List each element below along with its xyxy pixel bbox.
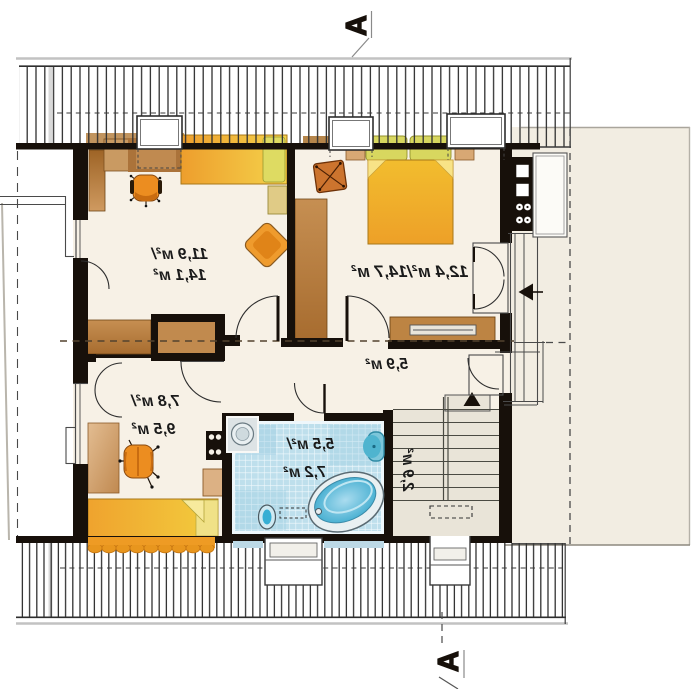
svg-text:14,1 м²: 14,1 м² [153, 267, 206, 284]
svg-text:11,9 м²/: 11,9 м²/ [150, 246, 208, 263]
svg-text:A: A [433, 651, 465, 672]
svg-text:7,8 м²/: 7,8 м²/ [130, 393, 180, 410]
svg-text:12,4 м²/14,7 м²: 12,4 м²/14,7 м² [350, 262, 468, 281]
svg-text:2,9 м²: 2,9 м² [399, 448, 416, 492]
svg-text:5,9 м²: 5,9 м² [365, 356, 408, 373]
svg-text:9,5 м²: 9,5 м² [131, 421, 176, 438]
svg-text:7,2 м²: 7,2 м² [283, 464, 326, 481]
svg-text:5,5 м²/: 5,5 м²/ [286, 436, 334, 453]
svg-text:A: A [341, 15, 373, 36]
